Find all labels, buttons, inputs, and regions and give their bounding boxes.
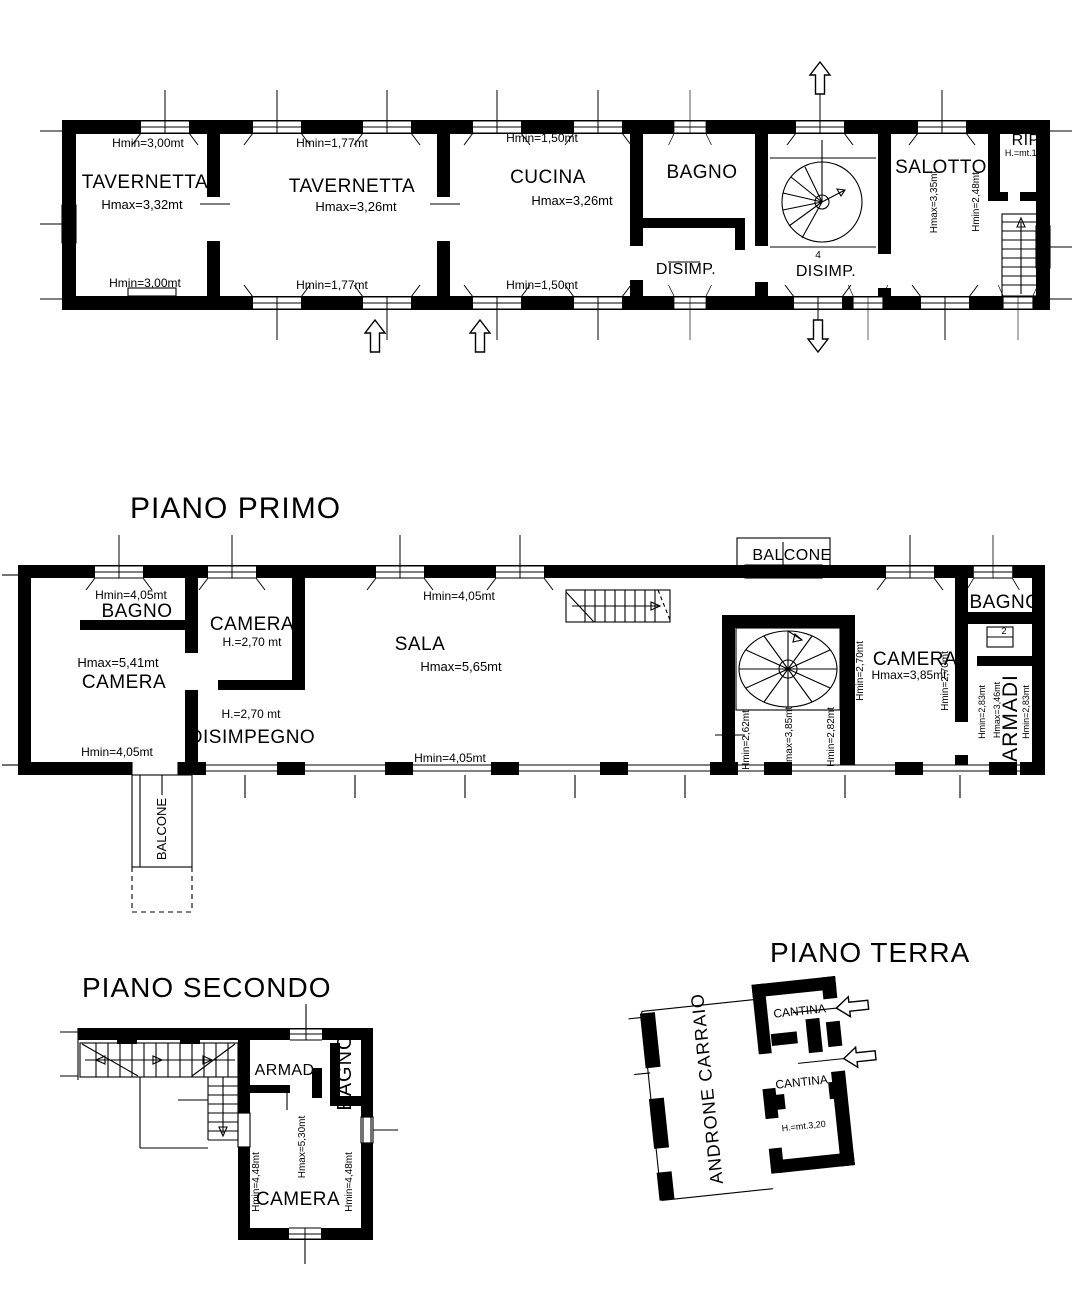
plan-piano-secondo: PIANO SECONDO [60,972,398,1264]
height-label: Hmax=3,85mt [871,668,947,682]
height-label: Hmin=3,00mt [112,136,184,150]
plan-seminterrato: Hmin=3,00mt TAVERNETTA Hmax=3,32mt Hmin=… [40,62,1072,352]
room-label-androne-carraio: ANDRONE CARRAIO [687,992,727,1185]
room-label-cucina: CUCINA [510,167,586,188]
plan-title-piano-secondo: PIANO SECONDO [82,972,331,1003]
height-label: Hmin=2,83mt [1021,685,1031,739]
height-label: Hmin=1,50mt [506,131,578,145]
room-label-sala: SALA [395,634,446,655]
room-label-disimpegno: DISIMPEGNO [189,727,315,748]
plan-piano-terra: PIANO TERRA [626,937,970,1202]
seminterrato-spiral-stair [770,140,876,247]
height-label: Hmin=2,62mt [741,710,752,770]
floorplan-canvas: Hmin=3,00mt TAVERNETTA Hmax=3,32mt Hmin=… [0,0,1092,1293]
plan-piano-primo: PIANO PRIMO [2,492,1045,912]
entry-arrow-icon [470,320,490,352]
height-label: Hmax=3,26mt [315,199,397,214]
height-label: Hmin=2,83mt [977,685,987,739]
height-label: Hmin=4,05mt [95,588,167,602]
piano-secondo-labels: ARMAD. BAGNO Hmax=5,30mt Hmin=4,48mt Hmi… [251,1033,356,1212]
door-arrow-icon [843,1045,877,1068]
stair-step-label: 4 [815,250,821,261]
room-label-cantina-2: CANTINA [775,1072,829,1091]
height-label: Hmin=2,70mt [855,641,866,701]
piano-secondo-stair [60,1028,238,1148]
piano-primo-spiral-stair [736,628,840,710]
height-label: Hmin=4,05mt [414,751,486,765]
room-label-bagno: BAGNO [334,1033,356,1110]
room-label-rip: RIP. [1012,132,1043,149]
entry-arrow-icon [810,62,830,94]
piano-primo-labels: BALCONE Hmin=4,05mt BAGNO Hmax=5,41mt CA… [77,547,1040,860]
floorplan-sheet: Hmin=3,00mt TAVERNETTA Hmax=3,32mt Hmin=… [0,0,1092,1293]
height-label: H.=mt.1,60 [1005,148,1049,158]
height-label: Hmin=3,00mt [109,276,181,290]
room-label-tavernetta-1: TAVERNETTA [82,172,208,193]
height-label: Hmin=2,70mt [940,651,951,711]
plan-title-piano-primo: PIANO PRIMO [130,492,341,525]
room-label-bagno: BAGNO [666,162,737,183]
height-label: Hmax=3,32mt [101,197,183,212]
room-label-balcone-sud: BALCONE [154,798,169,860]
height-label: Hmin=4,05mt [81,745,153,759]
height-label: Hmin=2,82mt [826,707,837,767]
height-label: Hmax=3,35mt [929,171,940,234]
room-label-cantina-1: CANTINA [773,1001,827,1020]
seminterrato-labels: Hmin=3,00mt TAVERNETTA Hmax=3,32mt Hmin=… [82,131,1049,292]
room-label-armadi: ARMADI [999,674,1022,762]
height-label: Hmin=2,48mt [880,172,891,232]
room-label-camera-ovest: CAMERA [82,672,166,693]
room-label-bagno-est: BAGNO [969,592,1040,613]
height-label: Hmax=3,26mt [531,193,613,208]
plan-title-piano-terra: PIANO TERRA [770,937,970,968]
height-label: Hmin=2,48mt [971,172,982,232]
height-label: Hmax=5,65mt [420,659,502,674]
height-label: Hmax=5,30mt [297,1116,308,1179]
door-arrow-icon [835,995,869,1018]
height-label: Hmin=4,48mt [344,1152,355,1212]
entry-arrow-icon [808,320,828,352]
room-label-balcone-nord: BALCONE [752,547,831,564]
height-label: Hmin=1,50mt [506,278,578,292]
height-label: H.=2,70 mt [221,707,281,721]
room-label-disimpegno-2: DISIMP. [796,263,856,280]
room-label-bagno-ovest: BAGNO [101,601,172,622]
height-label: Hmax=3,85mt [784,707,795,770]
height-label: Hmin=1,77mt [296,278,368,292]
piano-primo-windows [86,535,1019,590]
height-label: Hmin=2,48mt [759,172,770,232]
piano-terra-structure [626,973,888,1202]
height-label: H.=mt.3,20 [781,1119,826,1134]
room-label-tavernetta-2: TAVERNETTA [289,176,415,197]
room-label-camera: CAMERA [256,1189,340,1210]
height-label: Hmin=4,05mt [423,589,495,603]
entry-arrow-icon [365,320,385,352]
room-label-camera-centro: CAMERA [210,614,294,635]
stair-step-label: 2 [1001,626,1006,636]
room-label-armadio: ARMAD. [255,1062,320,1079]
height-label: Hmin=1,77mt [296,136,368,150]
piano-secondo-openings [238,1006,398,1264]
room-label-disimpegno-1: DISIMP. [656,261,716,278]
height-label: H.=2,70 mt [222,635,282,649]
seminterrato-rip-stair [1002,214,1040,296]
sala-stair [566,590,670,622]
height-label: Hmax=5,41mt [77,655,159,670]
